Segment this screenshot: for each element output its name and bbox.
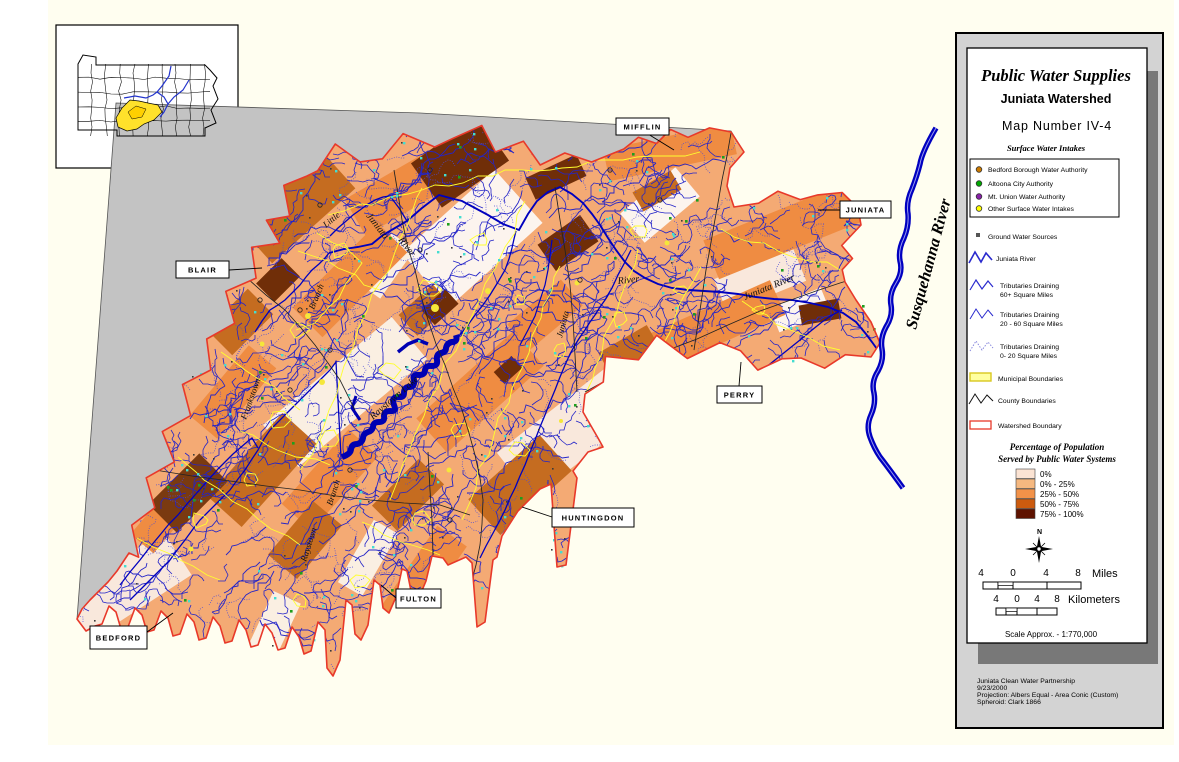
svg-text:0: 0 bbox=[1010, 568, 1016, 579]
svg-text:Spheroid: Clark 1866: Spheroid: Clark 1866 bbox=[977, 699, 1041, 706]
svg-text:Juniata Clean Water Partnershi: Juniata Clean Water Partnership bbox=[977, 678, 1075, 685]
svg-text:0%: 0% bbox=[1040, 470, 1052, 479]
svg-text:Tributaries Draining: Tributaries Draining bbox=[1000, 283, 1059, 290]
svg-text:Map Number IV-4: Map Number IV-4 bbox=[1002, 119, 1112, 133]
svg-text:Bedford Borough Water Authori: Bedford Borough Water Authority bbox=[988, 167, 1088, 174]
svg-text:Ground Water Sources: Ground Water Sources bbox=[988, 234, 1058, 241]
svg-text:Altoona City Authority: Altoona City Authority bbox=[988, 181, 1054, 188]
svg-text:Juniata River: Juniata River bbox=[996, 256, 1036, 263]
svg-text:BEDFORD: BEDFORD bbox=[96, 633, 141, 642]
svg-text:Other Surface Water Intakes: Other Surface Water Intakes bbox=[988, 206, 1074, 213]
svg-text:Tributaries Draining: Tributaries Draining bbox=[1000, 344, 1059, 351]
svg-text:75% - 100%: 75% - 100% bbox=[1040, 510, 1084, 519]
svg-text:0- 20 Square Miles: 0- 20 Square Miles bbox=[1000, 353, 1058, 360]
svg-text:8: 8 bbox=[1054, 594, 1060, 605]
svg-text:4: 4 bbox=[993, 594, 999, 605]
svg-text:4: 4 bbox=[1043, 568, 1049, 579]
svg-text:9/23/2000: 9/23/2000 bbox=[977, 685, 1007, 692]
svg-text:20 - 60 Square Miles: 20 - 60 Square Miles bbox=[1000, 321, 1063, 328]
svg-text:Percentage of Population: Percentage of Population bbox=[1010, 442, 1105, 452]
svg-text:JUNIATA: JUNIATA bbox=[846, 205, 886, 214]
svg-text:0: 0 bbox=[1014, 594, 1020, 605]
svg-text:Mt. Union Water Authority: Mt. Union Water Authority bbox=[988, 194, 1066, 201]
svg-text:Projection: Albers Equal - A: Projection: Albers Equal - Area Conic (C… bbox=[977, 692, 1118, 699]
svg-text:25% - 50%: 25% - 50% bbox=[1040, 490, 1079, 499]
svg-text:FULTON: FULTON bbox=[400, 594, 437, 603]
svg-text:N: N bbox=[1037, 529, 1042, 536]
svg-text:PERRY: PERRY bbox=[724, 390, 756, 399]
svg-text:BLAIR: BLAIR bbox=[188, 265, 217, 274]
svg-text:MIFFLIN: MIFFLIN bbox=[624, 122, 662, 131]
svg-text:Kilometers: Kilometers bbox=[1068, 594, 1120, 606]
svg-text:Scale Approx. - 1:770,000: Scale Approx. - 1:770,000 bbox=[1005, 630, 1098, 639]
svg-text:4: 4 bbox=[978, 568, 984, 579]
svg-text:Municipal Boundaries: Municipal Boundaries bbox=[998, 376, 1064, 383]
svg-text:0% - 25%: 0% - 25% bbox=[1040, 480, 1075, 489]
svg-text:50% - 75%: 50% - 75% bbox=[1040, 500, 1079, 509]
svg-text:4: 4 bbox=[1034, 594, 1040, 605]
svg-text:8: 8 bbox=[1075, 568, 1081, 579]
svg-text:60+ Square Miles: 60+ Square Miles bbox=[1000, 292, 1054, 299]
svg-text:Public Water Supplies: Public Water Supplies bbox=[980, 66, 1131, 85]
svg-text:Tributaries Draining: Tributaries Draining bbox=[1000, 312, 1059, 319]
svg-text:HUNTINGDON: HUNTINGDON bbox=[562, 513, 625, 522]
svg-text:Surface Water Intakes: Surface Water Intakes bbox=[1007, 143, 1086, 153]
svg-text:Watershed Boundary: Watershed Boundary bbox=[998, 423, 1062, 430]
svg-text:County Boundaries: County Boundaries bbox=[998, 398, 1056, 405]
svg-text:Served by Public Water Systems: Served by Public Water Systems bbox=[998, 454, 1116, 464]
svg-text:Miles: Miles bbox=[1092, 568, 1118, 580]
svg-text:Juniata Watershed: Juniata Watershed bbox=[1001, 92, 1112, 106]
